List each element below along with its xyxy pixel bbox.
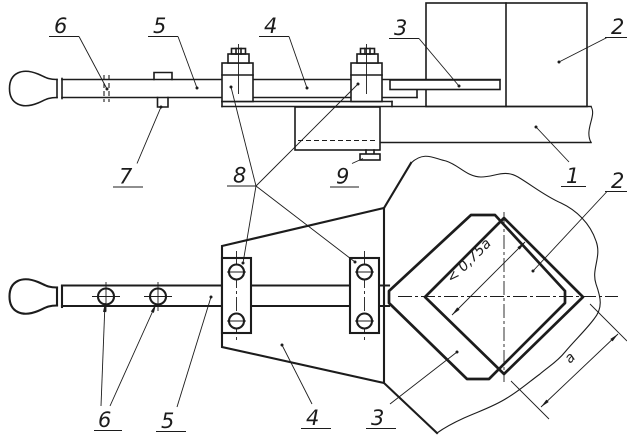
leader-dot (354, 261, 357, 264)
drawbar-eye (10, 71, 58, 105)
callout-6b-leader (110, 304, 156, 406)
clamp-right (351, 44, 382, 102)
callout-8-leader (243, 186, 256, 263)
callout-6-label: 6 (54, 14, 67, 38)
leader-dot (306, 87, 309, 90)
leader-dot (357, 83, 360, 86)
top-view (10, 3, 593, 160)
callout-5b-label: 5 (161, 409, 174, 433)
bolt-teeth (361, 49, 375, 55)
dimension-plate-edge: a (511, 304, 627, 419)
assembly-drawing-svg: < 0,75a a 6 5 4 3 2 (0, 0, 627, 438)
callout-7-label: 7 (119, 165, 133, 189)
clamp-left (222, 44, 253, 102)
leader-dot (458, 85, 461, 88)
leader-dot (535, 126, 538, 129)
dim-text-hole-width: < 0,75a (444, 236, 495, 287)
callout-2b-leader (533, 192, 607, 272)
dim-ext-line (590, 304, 627, 341)
callout-4-label: 4 (264, 14, 277, 38)
leader-dot (558, 61, 561, 64)
dim-text-plate-edge: a (561, 349, 578, 366)
callout-9-leader (352, 159, 363, 164)
t-bolt-flange (360, 154, 380, 160)
bottom-view: < 0,75a a (10, 156, 627, 433)
dim-line (541, 334, 618, 407)
leader-dot (532, 270, 535, 273)
bracket-box (295, 107, 380, 150)
leader-dot (196, 87, 199, 90)
technical-drawing-page: < 0,75a a 6 5 4 3 2 (0, 0, 627, 438)
plate-corner-edge-bottom (384, 383, 437, 433)
leader-dot (210, 296, 213, 299)
leader-dot (242, 262, 245, 265)
callout-8-label: 8 (233, 164, 246, 188)
dimension-hole-width: < 0,75a (444, 236, 525, 315)
callout-1-label: 1 (566, 164, 579, 188)
callout-6b-leader (101, 303, 105, 406)
callout-5b-leader (177, 297, 211, 407)
callout-4b-label: 4 (306, 406, 319, 430)
callout-3b-leader (390, 352, 457, 404)
callout-1-leader (536, 127, 569, 162)
leader-dot (106, 88, 109, 91)
beam-break-line (589, 107, 593, 143)
callout-2b-label: 2 (611, 169, 624, 193)
callout-5-label: 5 (153, 14, 166, 38)
callout-2-label: 2 (611, 15, 624, 39)
clamp-body (222, 63, 253, 102)
leader-dot (281, 344, 284, 347)
diamond-hole-outline (389, 215, 565, 379)
leader-dot (230, 86, 233, 89)
lower-stop-tab (158, 98, 169, 108)
callout-9-label: 9 (336, 165, 349, 189)
callout-7-leader (137, 107, 161, 164)
leader-dot (456, 351, 459, 354)
callout-3b-label: 3 (371, 406, 384, 430)
latch-strip (390, 80, 500, 90)
bolt-head (357, 54, 378, 63)
callout-4b-leader (282, 345, 312, 404)
drawbar-eye (10, 279, 58, 313)
plate-corner-edge-top (384, 163, 411, 208)
callout-6b-label: 6 (98, 408, 111, 432)
callout-6-leader (79, 37, 107, 90)
callout-3-label: 3 (394, 16, 407, 40)
leader-dot (160, 106, 163, 109)
callout-8-leader (256, 186, 355, 262)
upper-tab (154, 73, 172, 80)
dim-ext-line (511, 381, 549, 419)
